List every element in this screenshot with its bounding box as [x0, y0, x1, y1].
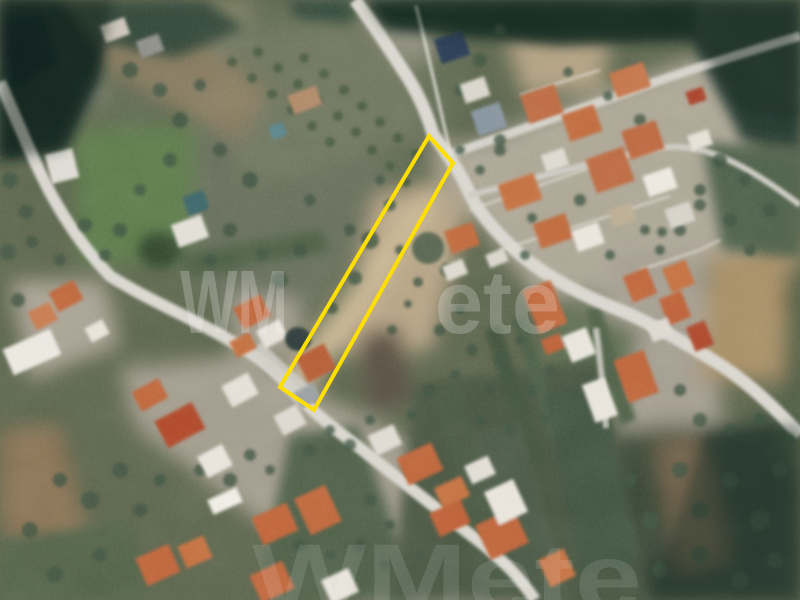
- svg-text:WM: WM: [180, 253, 288, 353]
- svg-text:WMete: WMete: [252, 525, 642, 600]
- svg-text:ete: ete: [435, 253, 560, 353]
